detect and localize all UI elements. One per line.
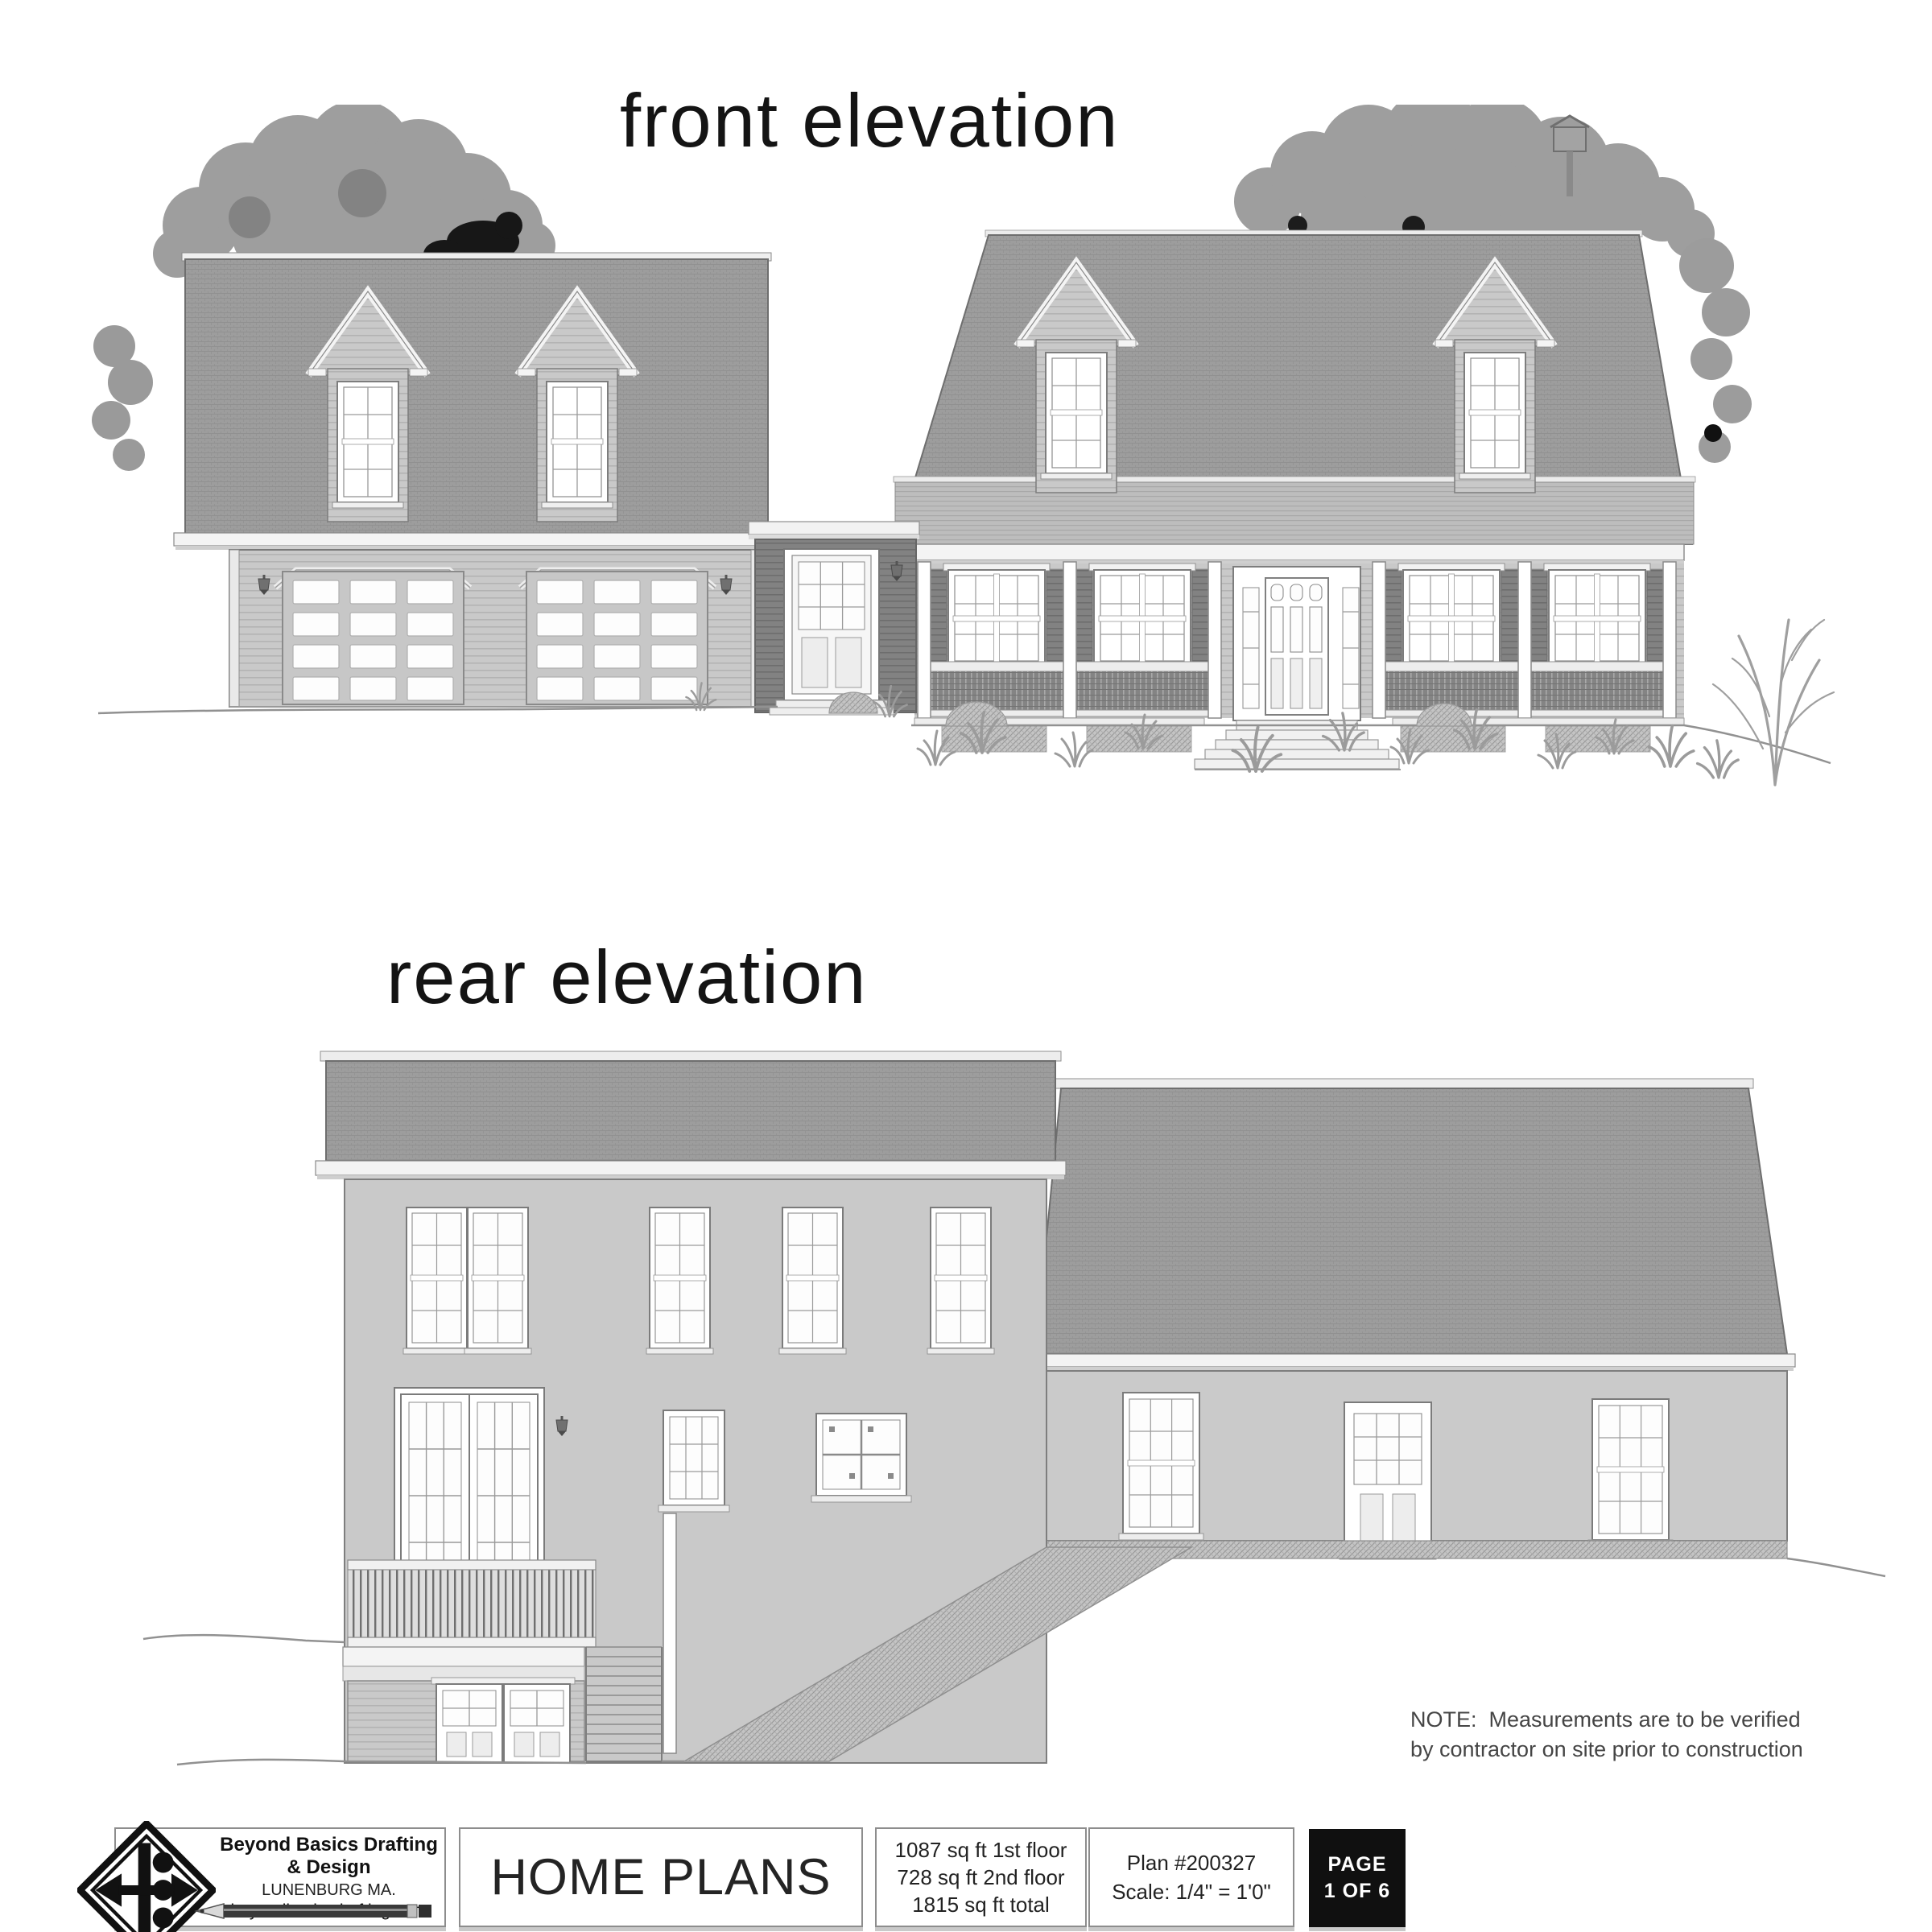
rear-main-ridge — [1055, 1079, 1753, 1088]
stair-rail-post — [663, 1513, 676, 1753]
rear-main-wing — [1026, 1079, 1795, 1559]
rear-left-ridge — [320, 1051, 1061, 1061]
bare-bush — [1713, 620, 1834, 785]
rear-casement-window — [811, 1414, 911, 1502]
plan-number: Plan #200327 — [1127, 1848, 1256, 1877]
area-first-floor: 1087 sq ft 1st floor — [895, 1836, 1067, 1864]
front-window-3 — [1384, 563, 1519, 673]
rear-window-left — [1119, 1393, 1203, 1540]
garage-eave-fascia — [174, 533, 779, 546]
front-window-4 — [1529, 563, 1665, 673]
pencil-icon — [193, 1901, 438, 1921]
walkout-doors — [431, 1678, 575, 1763]
breezeway — [749, 522, 919, 715]
plan-sheet: front elevation rear elevation — [0, 0, 1932, 1932]
main-house — [894, 230, 1695, 769]
company-location: LUNENBURG MA. — [217, 1881, 441, 1900]
page-badge: PAGE 1 OF 6 — [1309, 1829, 1406, 1927]
document-title-cell: HOME PLANS — [459, 1827, 863, 1927]
document-title: HOME PLANS — [490, 1848, 831, 1906]
garage-door-right — [526, 572, 708, 704]
title-block-logo-cell: Beyond Basics Drafting & Design LUNENBUR… — [114, 1827, 446, 1927]
rear-elevation-title: rear elevation — [386, 934, 868, 1021]
front-steps — [1195, 720, 1399, 769]
breezeway-door — [784, 549, 879, 700]
porch-roof-band — [895, 482, 1694, 544]
rear-left-roof — [326, 1061, 1055, 1161]
front-entry-door — [1233, 567, 1360, 720]
area-summary-cell: 1087 sq ft 1st floor 728 sq ft 2nd floor… — [875, 1827, 1087, 1927]
garage — [174, 253, 779, 707]
note-line-2: by contractor on site prior to construct… — [1410, 1735, 1803, 1765]
garage-roof — [185, 259, 768, 536]
measurement-note: NOTE: Measurements are to be verified by… — [1410, 1705, 1803, 1765]
rear-door — [1340, 1402, 1436, 1559]
rear-left-fascia — [316, 1161, 1066, 1175]
area-total: 1815 sq ft total — [912, 1891, 1050, 1918]
page-badge-label: PAGE — [1328, 1851, 1387, 1878]
front-window-2 — [1075, 563, 1210, 673]
rear-window-right — [1588, 1399, 1673, 1546]
front-elevation-drawing — [80, 105, 1851, 813]
front-window-1 — [929, 563, 1064, 673]
rear-mid-window — [658, 1410, 729, 1512]
rear-main-roof — [1035, 1088, 1787, 1354]
breezeway-fascia — [749, 522, 919, 535]
rear-deck — [343, 1560, 596, 1763]
page-badge-number: 1 OF 6 — [1324, 1878, 1390, 1905]
plan-info-cell: Plan #200327 Scale: 1/4" = 1'0" — [1088, 1827, 1294, 1927]
porch-beam — [911, 544, 1684, 560]
rear-main-fascia — [1026, 1354, 1795, 1367]
garage-door-left — [283, 572, 464, 704]
note-line-1: NOTE: Measurements are to be verified — [1410, 1705, 1803, 1735]
plan-scale: Scale: 1/4" = 1'0" — [1112, 1877, 1271, 1906]
company-name: Beyond Basics Drafting & Design — [217, 1834, 441, 1879]
rear-elevation-drawing — [121, 1038, 1892, 1771]
area-second-floor: 728 sq ft 2nd floor — [897, 1864, 1064, 1891]
